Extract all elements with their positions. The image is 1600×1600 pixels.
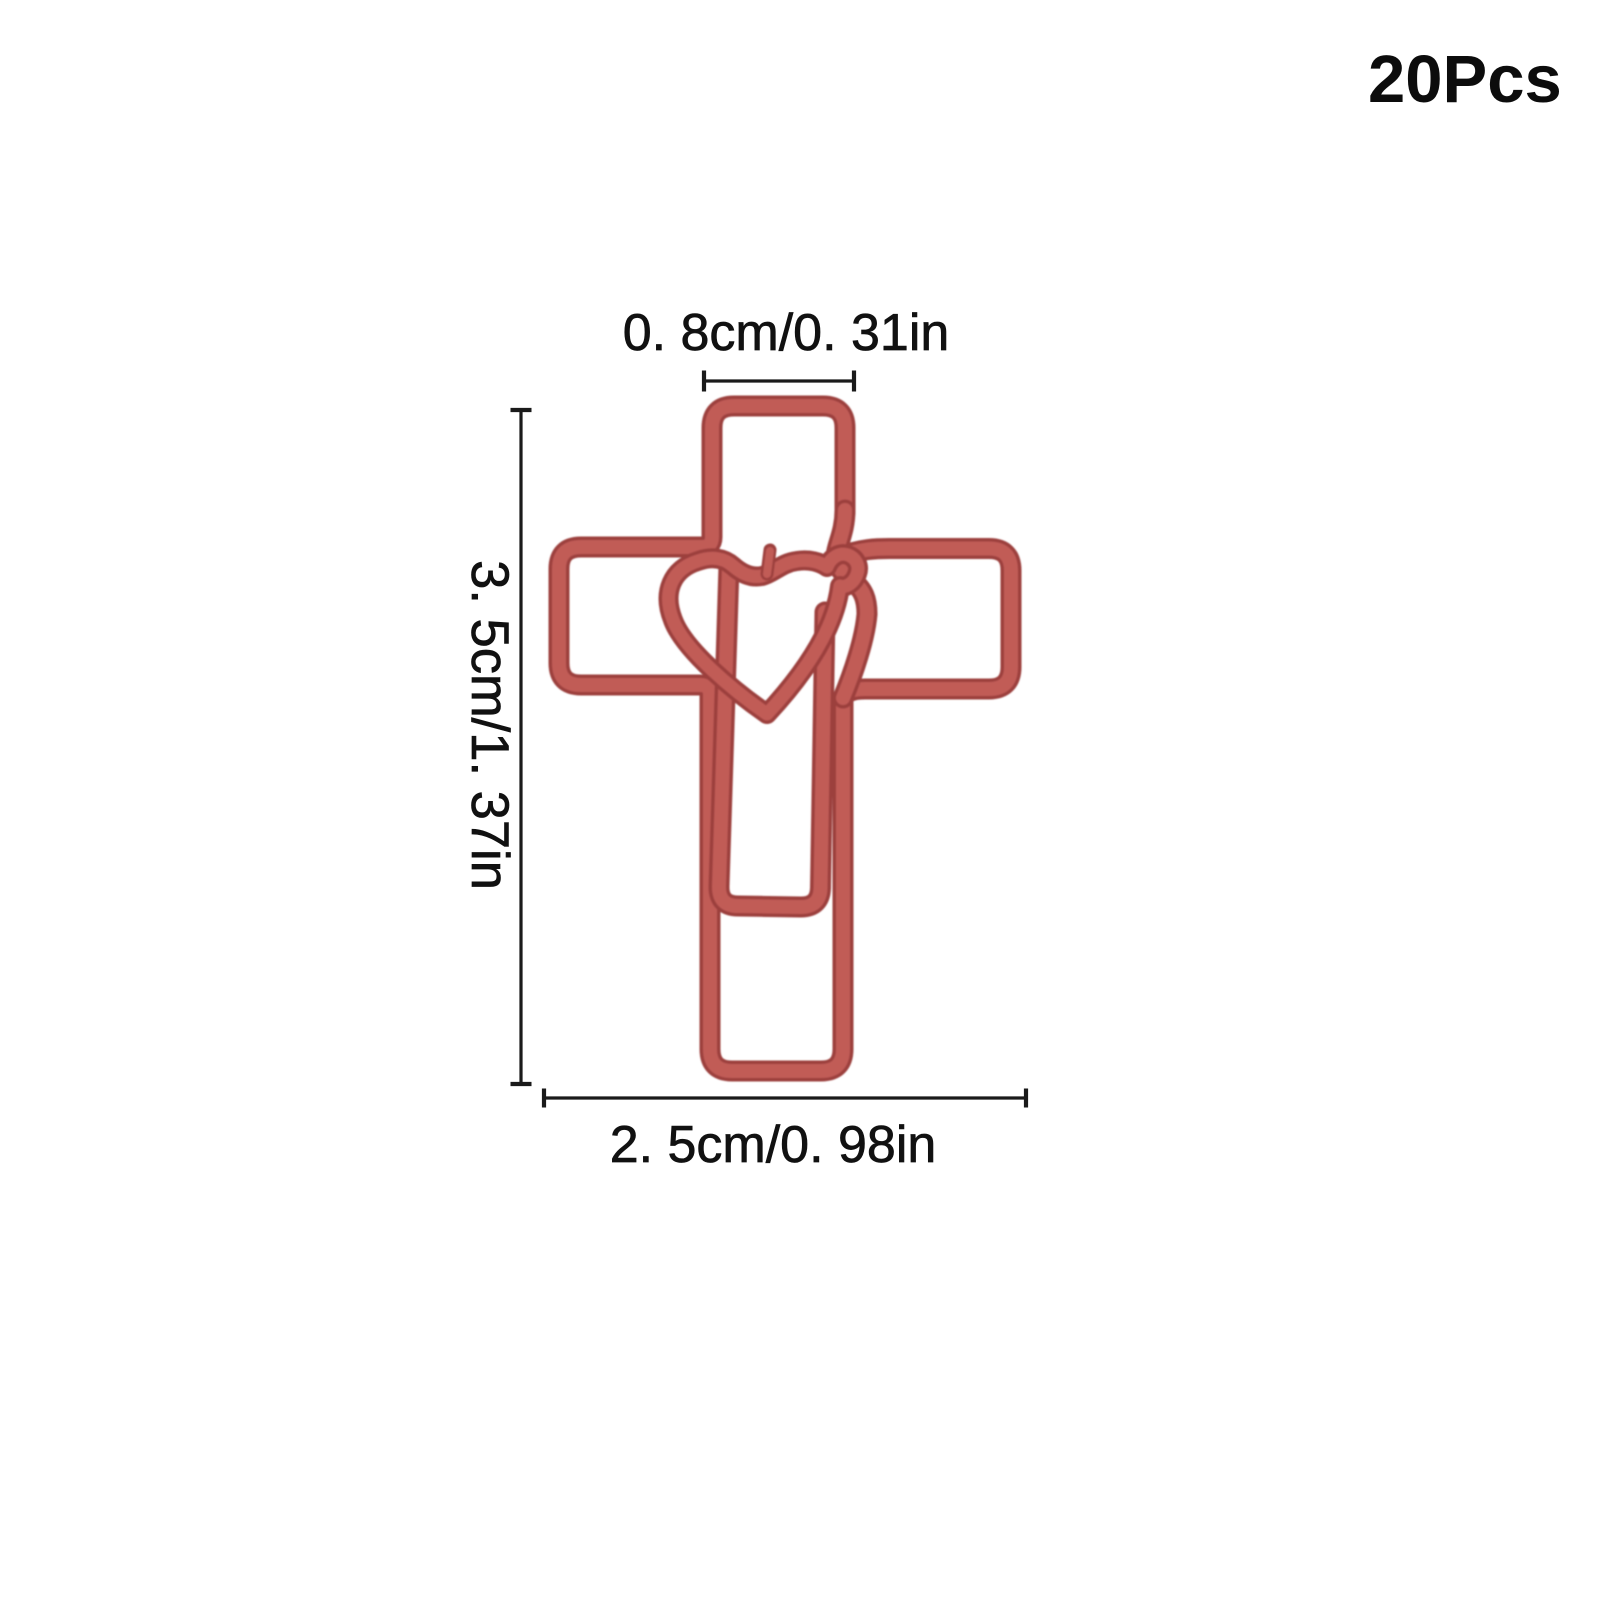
svg-text:20Pcs: 20Pcs	[1368, 42, 1562, 117]
svg-text:2. 5cm/0. 98in: 2. 5cm/0. 98in	[610, 1116, 937, 1174]
svg-text:0. 8cm/0. 31in: 0. 8cm/0. 31in	[623, 304, 950, 362]
svg-text:3. 5cm/1. 37in: 3. 5cm/1. 37in	[460, 560, 519, 890]
